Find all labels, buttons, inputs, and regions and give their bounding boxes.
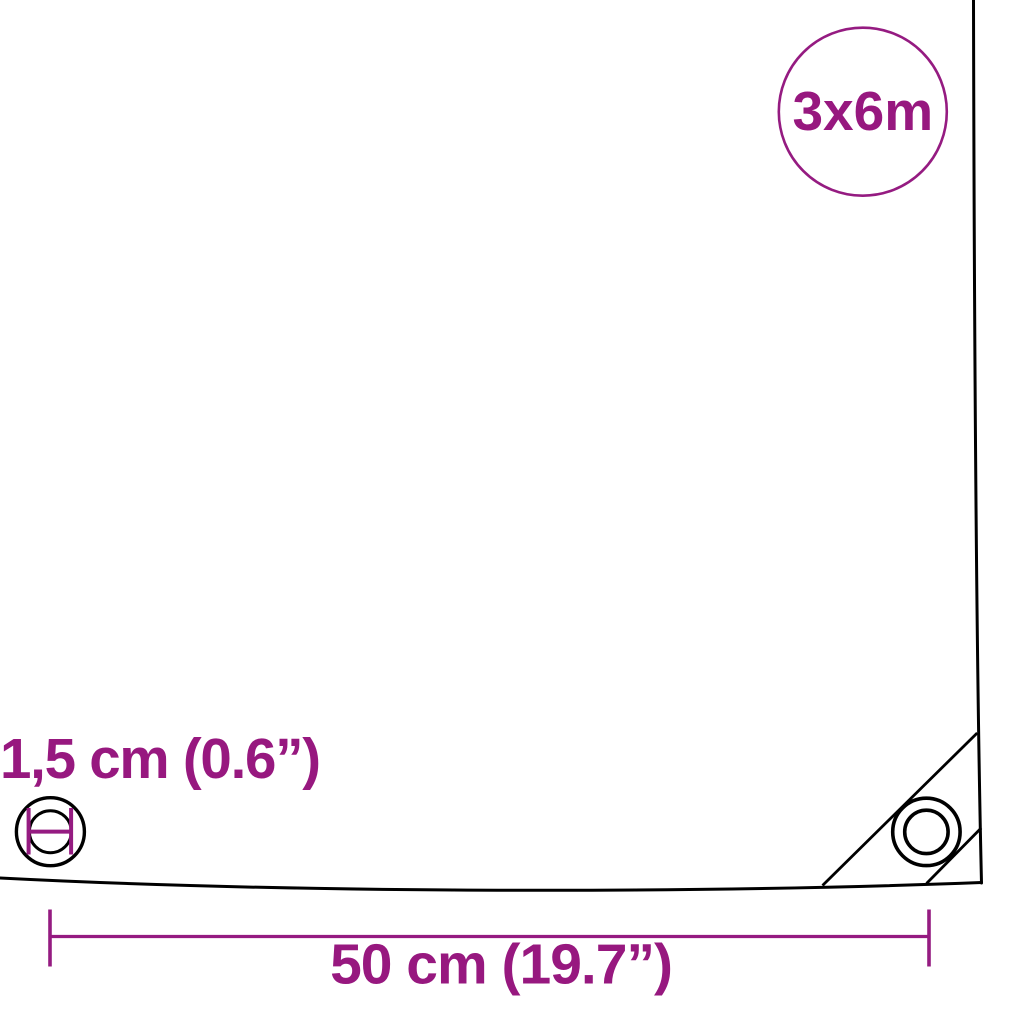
svg-text:1,5 cm (0.6”): 1,5 cm (0.6”) [0,727,320,790]
svg-text:3x6m: 3x6m [792,80,933,142]
svg-text:50 cm (19.7”): 50 cm (19.7”) [330,933,672,997]
